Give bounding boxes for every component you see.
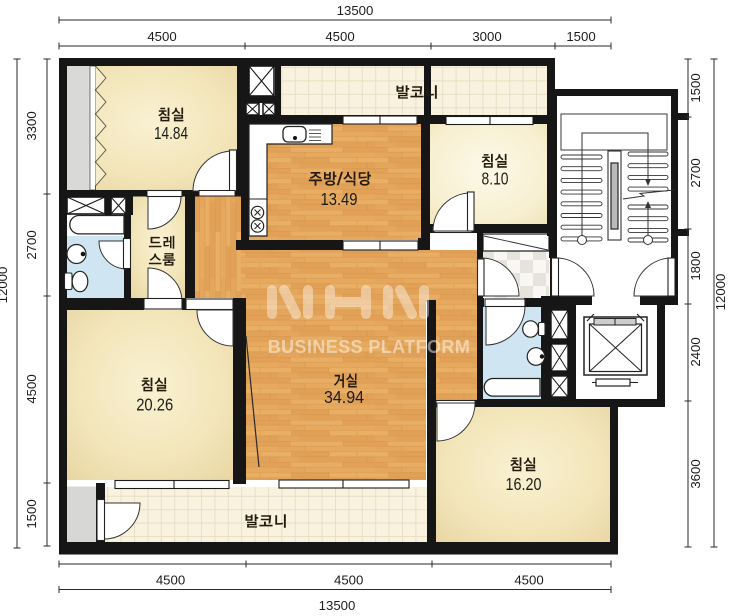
svg-text:1800: 1800 (688, 251, 703, 280)
svg-text:12000: 12000 (0, 267, 10, 304)
svg-text:4500: 4500 (334, 573, 363, 588)
svg-text:2700: 2700 (688, 158, 703, 187)
svg-text:BUSINESS PLATFORM: BUSINESS PLATFORM (268, 337, 470, 357)
svg-text:13.49: 13.49 (321, 189, 358, 209)
svg-text:14.84: 14.84 (154, 123, 188, 143)
svg-text:3000: 3000 (472, 29, 501, 44)
svg-text:3600: 3600 (688, 459, 703, 488)
svg-text:2400: 2400 (688, 337, 703, 366)
svg-text:2700: 2700 (24, 230, 39, 259)
svg-text:4500: 4500 (514, 573, 543, 588)
svg-text:20.26: 20.26 (136, 395, 173, 415)
svg-text:12000: 12000 (713, 274, 728, 311)
svg-text:13500: 13500 (319, 598, 356, 613)
svg-text:16.20: 16.20 (506, 474, 542, 494)
svg-text:8.10: 8.10 (482, 169, 509, 189)
svg-text:1500: 1500 (566, 29, 595, 44)
svg-text:34.94: 34.94 (324, 387, 364, 407)
svg-text:1500: 1500 (24, 499, 39, 528)
svg-text:4500: 4500 (24, 374, 39, 403)
svg-text:4500: 4500 (156, 573, 185, 588)
svg-text:1500: 1500 (688, 73, 703, 102)
svg-text:13500: 13500 (337, 3, 374, 18)
svg-text:3300: 3300 (24, 111, 39, 140)
svg-text:4500: 4500 (147, 29, 176, 44)
svg-text:4500: 4500 (325, 29, 354, 44)
